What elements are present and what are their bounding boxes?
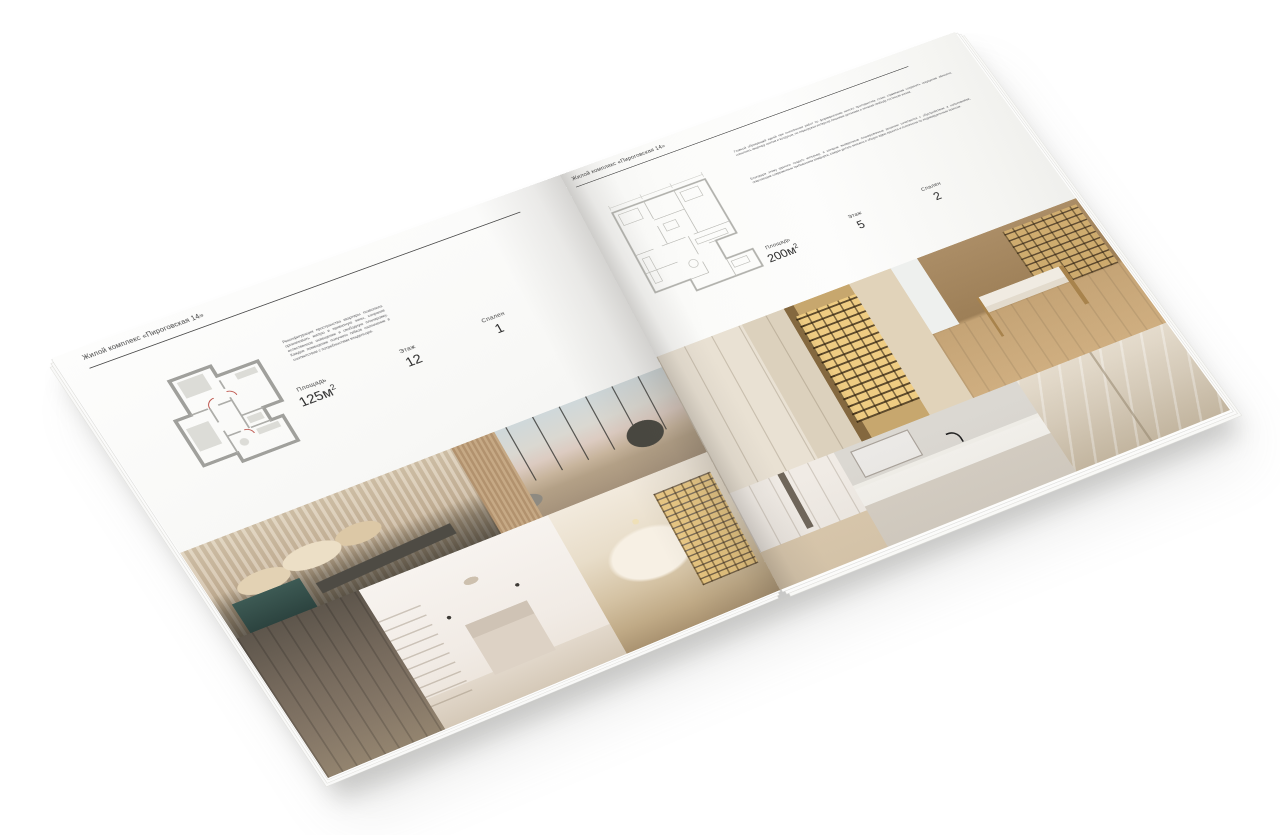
floor-plan-left	[140, 342, 323, 492]
spec-bedrooms-left: Спален 1	[470, 306, 524, 343]
spec-area-right: Площадь 200м2	[754, 233, 810, 269]
spec-floor-right: Этаж 5	[837, 206, 882, 237]
spec-floor-left: Этаж 12	[386, 339, 438, 375]
spec-area-left: Площадь 125м2	[283, 372, 350, 414]
black-faucet	[945, 429, 963, 445]
spec-bedrooms-right: Спален 2	[911, 177, 959, 209]
brochure-photo-stage: Жилой комплекс «Пироговская 14»	[0, 0, 1280, 835]
bed	[465, 600, 555, 674]
left-page-description: Реконфигурация пространства квартиры поз…	[281, 304, 393, 362]
